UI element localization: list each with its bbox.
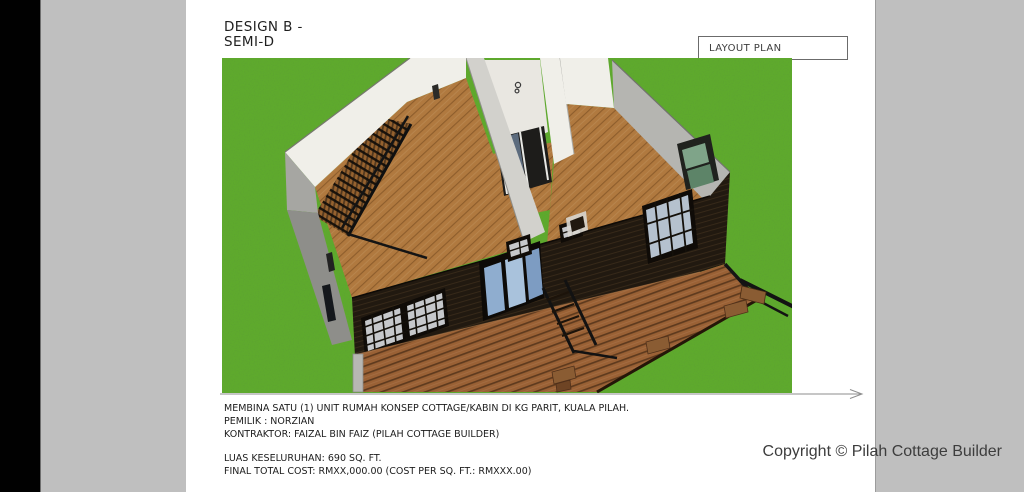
separator-arrow-line	[220, 388, 870, 400]
screenshot-root: { "page": { "title_line1": "DESIGN B -",…	[0, 0, 1024, 492]
note-line-2: PEMILIK : NORZIAN	[224, 415, 629, 428]
deck-corner-post	[353, 354, 363, 392]
note-line-3: KONTRAKTOR: FAIZAL BIN FAIZ (PILAH COTTA…	[224, 428, 629, 441]
copyright-watermark: Copyright © Pilah Cottage Builder	[763, 443, 1002, 461]
title-line-2: SEMI-D	[224, 34, 274, 50]
note-line-5: FINAL TOTAL COST: RMXX,000.00 (COST PER …	[224, 465, 531, 478]
project-notes: MEMBINA SATU (1) UNIT RUMAH KONSEP COTTA…	[224, 402, 629, 441]
note-line-4: LUAS KESELURUHAN: 690 SQ. FT.	[224, 452, 531, 465]
plan-sheet-page: DESIGN B -SEMI-D LAYOUT PLAN	[186, 0, 876, 492]
title-line-1: DESIGN B -	[224, 19, 303, 35]
project-totals: LUAS KESELURUHAN: 690 SQ. FT. FINAL TOTA…	[224, 452, 531, 478]
layout-plan-label: LAYOUT PLAN	[709, 43, 781, 54]
cottage-3d-render	[222, 58, 792, 393]
page-title: DESIGN B -SEMI-D	[224, 20, 303, 50]
note-line-1: MEMBINA SATU (1) UNIT RUMAH KONSEP COTTA…	[224, 402, 629, 415]
left-black-bar	[0, 0, 41, 492]
layout-plan-label-box: LAYOUT PLAN	[698, 36, 848, 60]
